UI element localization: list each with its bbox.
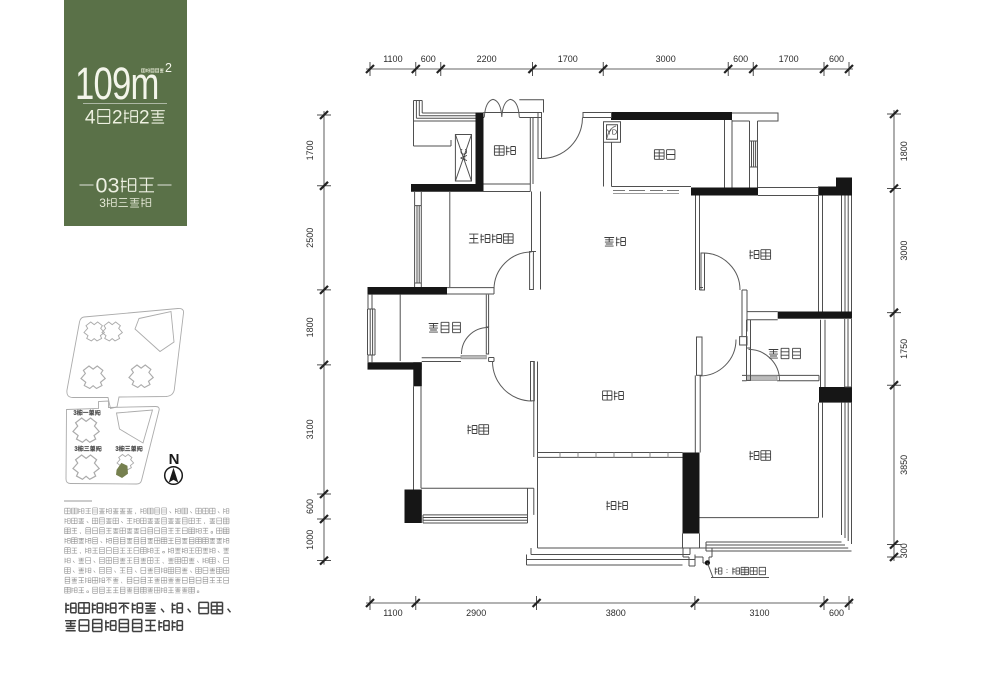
svg-text:4: 4 bbox=[85, 107, 96, 128]
svg-text:3000: 3000 bbox=[899, 241, 909, 261]
svg-text:0: 0 bbox=[96, 174, 108, 198]
svg-text:1100: 1100 bbox=[383, 54, 402, 64]
svg-text:600: 600 bbox=[733, 54, 748, 64]
svg-text:600: 600 bbox=[829, 608, 844, 618]
svg-text:1750: 1750 bbox=[899, 339, 909, 359]
svg-text:3100: 3100 bbox=[749, 608, 769, 618]
svg-text:3800: 3800 bbox=[606, 608, 626, 618]
svg-text:1100: 1100 bbox=[383, 608, 402, 618]
svg-text:2900: 2900 bbox=[466, 608, 486, 618]
svg-text:3850: 3850 bbox=[899, 455, 909, 475]
svg-text:1000: 1000 bbox=[305, 530, 315, 550]
svg-text:1700: 1700 bbox=[558, 54, 578, 64]
svg-text:YD: YD bbox=[607, 128, 618, 137]
svg-text:3: 3 bbox=[74, 446, 78, 453]
svg-text:N: N bbox=[169, 451, 180, 468]
svg-text:3: 3 bbox=[108, 174, 120, 198]
svg-text:600: 600 bbox=[305, 499, 315, 514]
svg-text:600: 600 bbox=[829, 54, 844, 64]
svg-text:2: 2 bbox=[139, 107, 150, 128]
svg-text:1700: 1700 bbox=[779, 54, 799, 64]
svg-text:3: 3 bbox=[73, 410, 77, 417]
svg-text:2200: 2200 bbox=[477, 54, 497, 64]
svg-text:3: 3 bbox=[115, 446, 119, 453]
svg-text:600: 600 bbox=[421, 54, 436, 64]
svg-text:AC: AC bbox=[459, 148, 469, 161]
svg-text:2500: 2500 bbox=[305, 228, 315, 248]
svg-text:3: 3 bbox=[99, 196, 106, 210]
svg-text:1800: 1800 bbox=[899, 141, 909, 161]
svg-text:3100: 3100 bbox=[305, 419, 315, 439]
svg-text:3000: 3000 bbox=[656, 54, 676, 64]
svg-text:1800: 1800 bbox=[305, 317, 315, 337]
svg-text:1700: 1700 bbox=[305, 140, 315, 160]
svg-text:300: 300 bbox=[899, 543, 909, 558]
svg-text:2: 2 bbox=[112, 107, 123, 128]
